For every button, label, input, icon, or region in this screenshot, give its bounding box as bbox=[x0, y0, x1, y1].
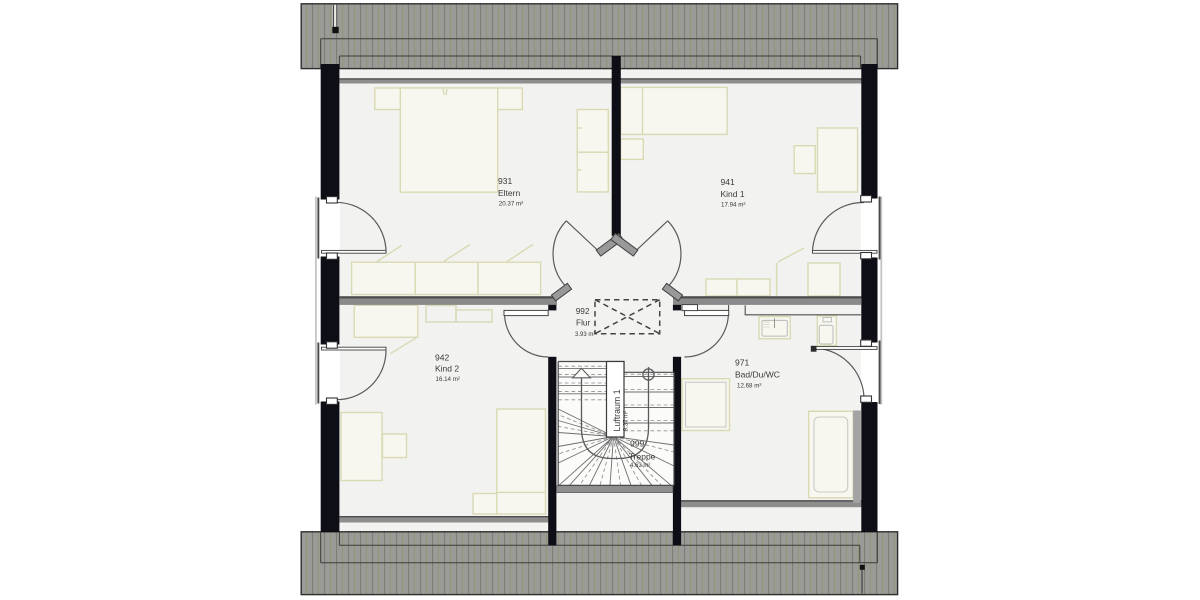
svg-text:3.93 m²: 3.93 m² bbox=[575, 332, 595, 338]
svg-text:Bad/Du/WC: Bad/Du/WC bbox=[735, 370, 780, 380]
svg-text:16.14 m²: 16.14 m² bbox=[436, 376, 460, 383]
svg-text:17.94 m²: 17.94 m² bbox=[721, 201, 745, 208]
svg-text:Treppe: Treppe bbox=[629, 452, 656, 462]
svg-text:Kind 2: Kind 2 bbox=[435, 364, 459, 374]
svg-text:Eltern: Eltern bbox=[498, 188, 520, 198]
svg-text:12.68 m²: 12.68 m² bbox=[737, 383, 761, 390]
svg-text:20.37 m²: 20.37 m² bbox=[499, 200, 523, 207]
svg-text:971: 971 bbox=[735, 358, 749, 368]
svg-text:931: 931 bbox=[498, 176, 512, 186]
svg-text:941: 941 bbox=[721, 177, 735, 187]
svg-text:992: 992 bbox=[576, 306, 590, 316]
svg-text:Flur: Flur bbox=[576, 317, 591, 327]
svg-text:9.37 m²: 9.37 m² bbox=[624, 411, 630, 431]
svg-text:Kind 1: Kind 1 bbox=[721, 189, 745, 199]
svg-text:4.63 m²: 4.63 m² bbox=[630, 463, 650, 469]
svg-text:Luftraum 1: Luftraum 1 bbox=[612, 389, 622, 431]
svg-text:942: 942 bbox=[435, 352, 449, 362]
svg-text:999: 999 bbox=[630, 438, 645, 448]
